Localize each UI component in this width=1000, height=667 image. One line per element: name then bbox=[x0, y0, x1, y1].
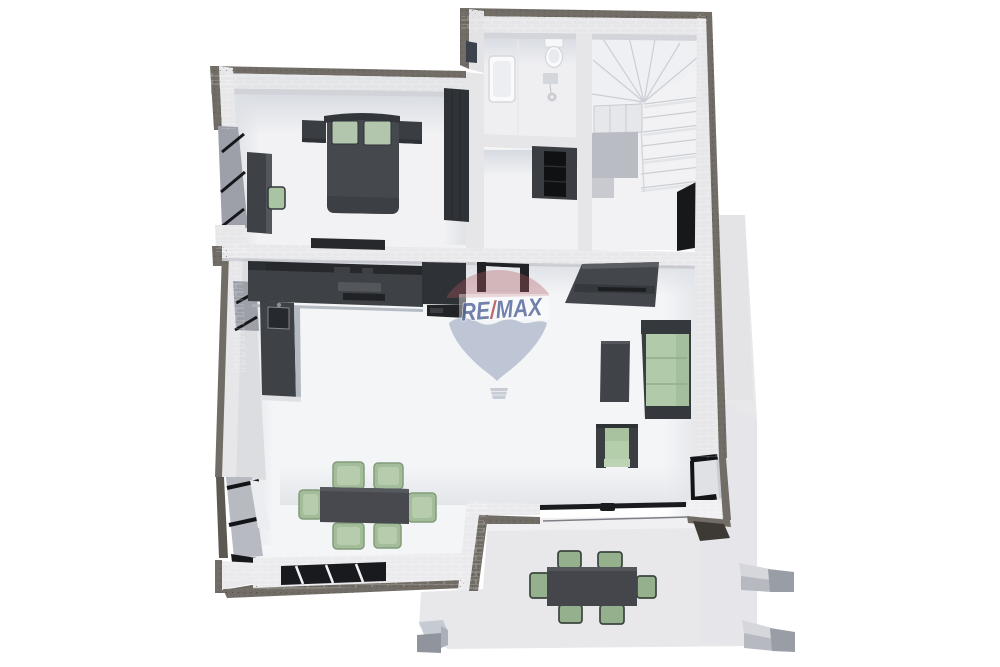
svg-text:RE/MAX: RE/MAX bbox=[460, 293, 544, 327]
